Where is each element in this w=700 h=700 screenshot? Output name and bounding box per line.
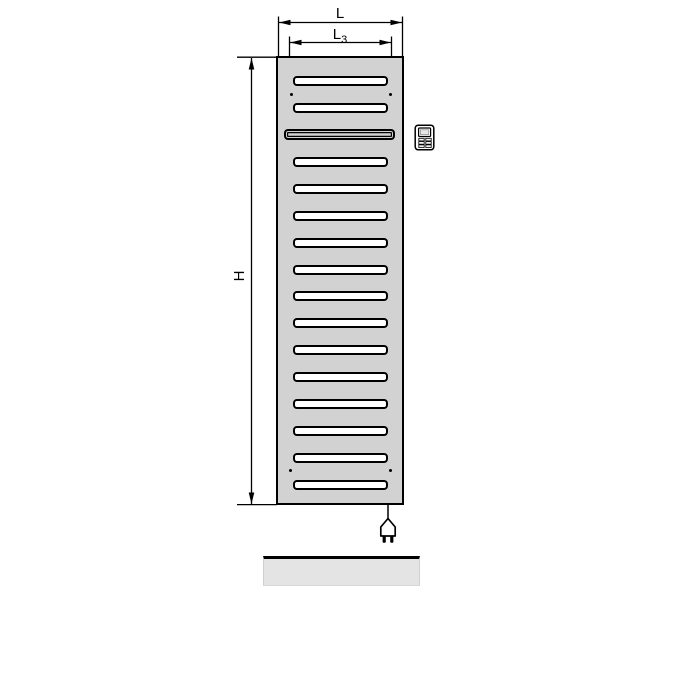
radiator-slot <box>293 291 388 301</box>
mounting-dot <box>290 93 293 96</box>
radiator-slot <box>293 345 388 355</box>
floor-bar <box>263 556 420 586</box>
heating-element-slot <box>284 129 395 140</box>
width-label: L <box>320 6 360 22</box>
radiator-slot <box>293 265 388 275</box>
control-unit-icon <box>414 124 436 152</box>
mounting-dot <box>389 93 392 96</box>
power-plug-icon <box>375 500 401 546</box>
mounting-dot <box>289 469 292 472</box>
radiator-slot <box>293 103 388 113</box>
radiator-slot <box>293 76 388 86</box>
mounting-dot <box>389 469 392 472</box>
radiator-slot <box>293 157 388 167</box>
radiator-slot <box>293 318 388 328</box>
radiator-slot <box>293 184 388 194</box>
radiator-slot <box>293 399 388 409</box>
diagram-canvas: L L3 H <box>0 0 700 700</box>
radiator-slot <box>293 426 388 436</box>
radiator-slot <box>293 211 388 221</box>
radiator-slot <box>293 453 388 463</box>
radiator-slot <box>293 372 388 382</box>
radiator-slot <box>293 480 388 490</box>
radiator-body <box>276 56 404 505</box>
inner-width-label: L3 <box>320 27 360 48</box>
height-label: H <box>232 264 248 288</box>
radiator-slot <box>293 238 388 248</box>
